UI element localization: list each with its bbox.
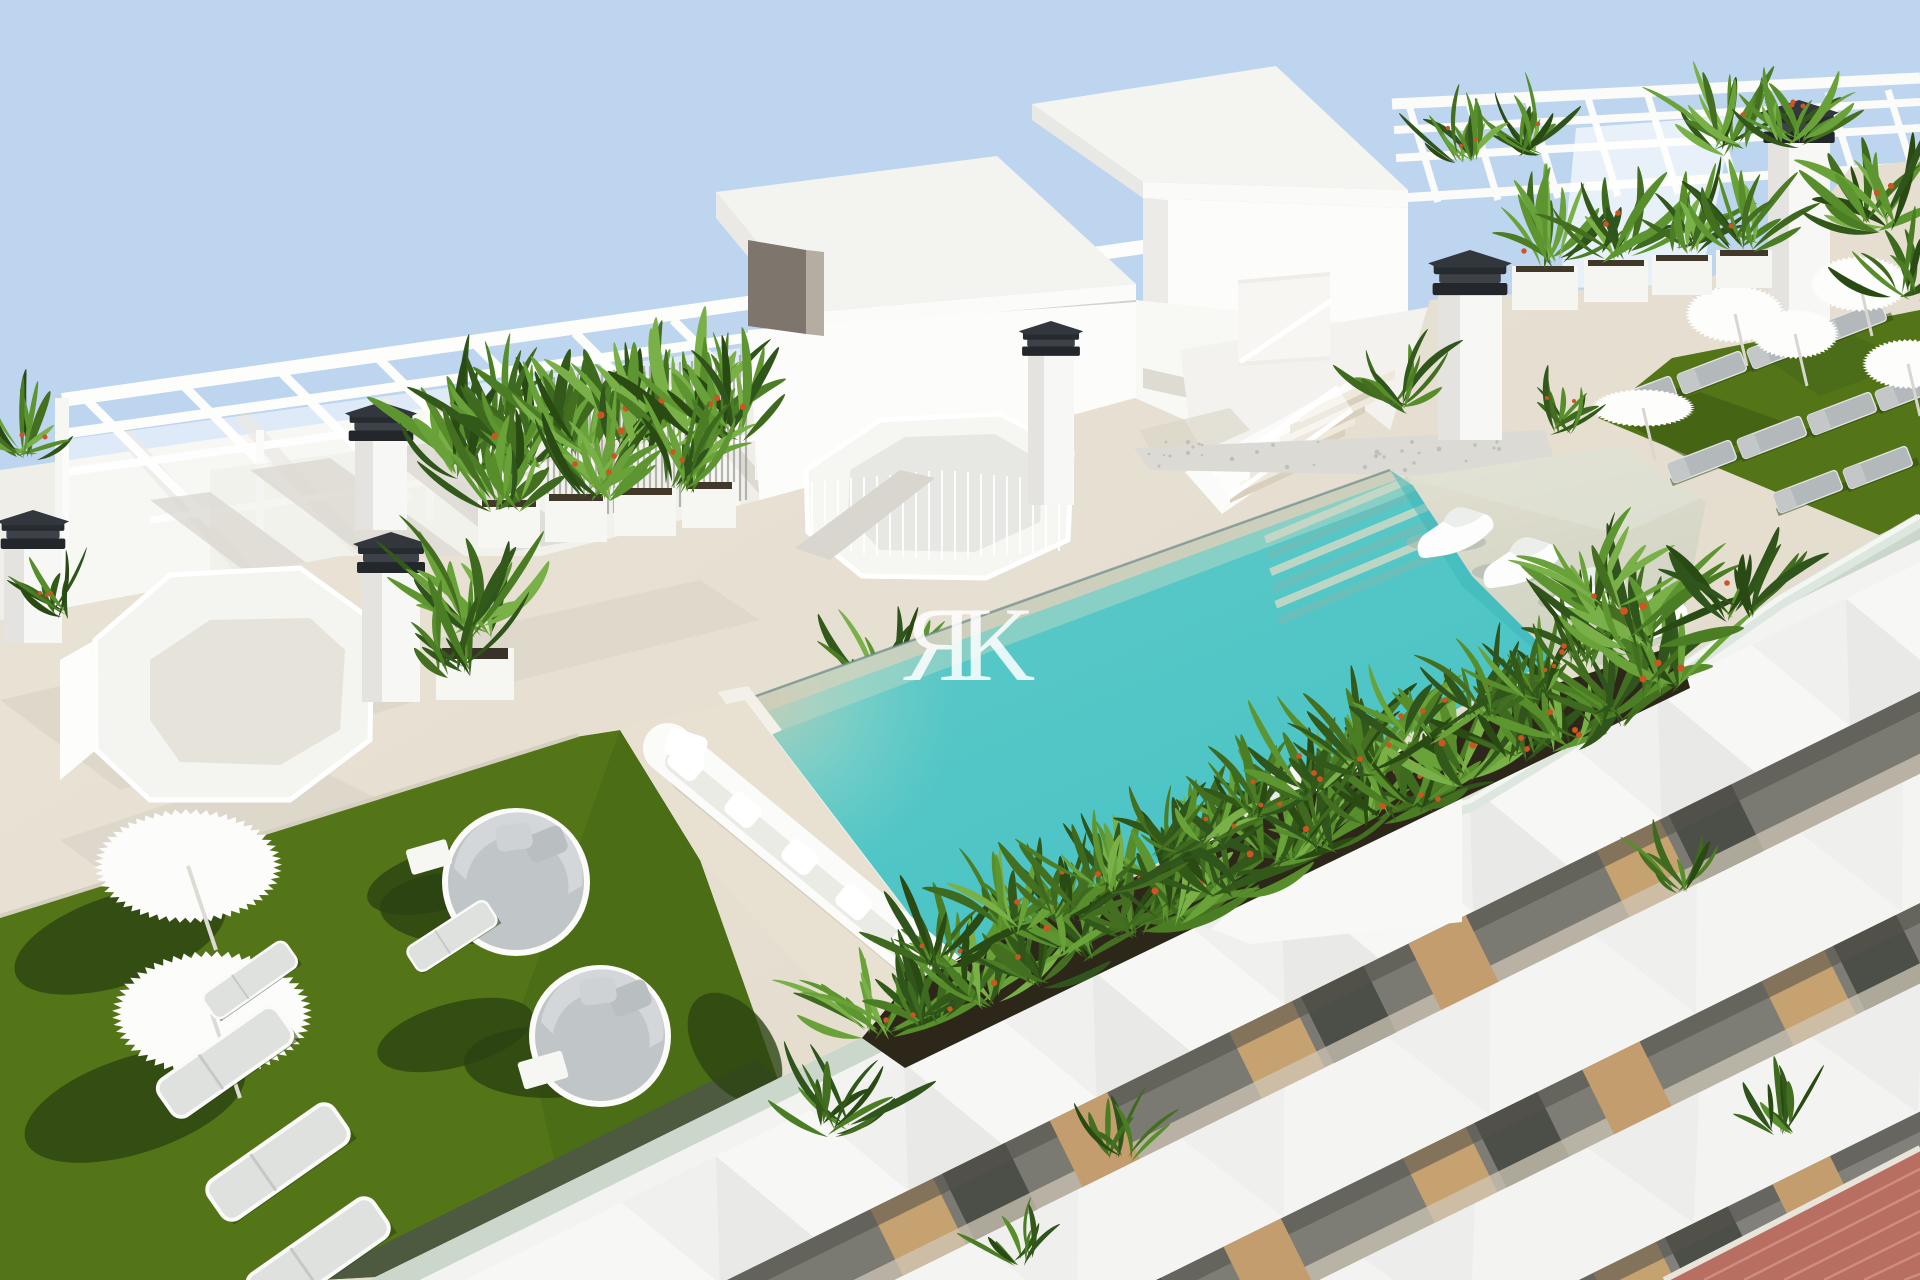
svg-text:ЯK: ЯK [903, 586, 1035, 703]
